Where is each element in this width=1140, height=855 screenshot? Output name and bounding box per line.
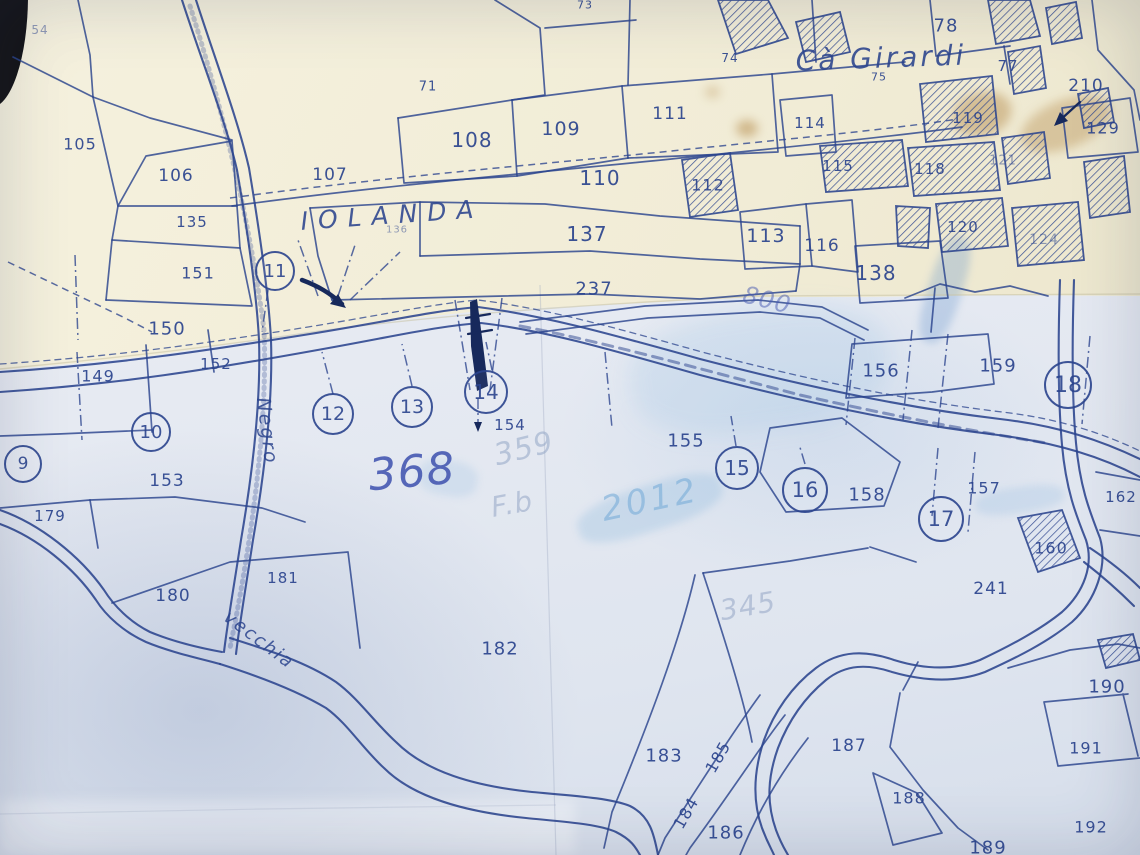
parcel-number: 129: [1086, 119, 1120, 138]
parcel-number: 120: [947, 218, 979, 236]
parcel-number: 192: [1074, 818, 1108, 837]
parcel-number: 78: [934, 16, 959, 37]
handwritten-note: 368: [366, 443, 457, 501]
parcel-number: 124: [1029, 232, 1059, 248]
parcel-number: 74: [721, 51, 738, 65]
parcel-number: 153: [149, 471, 184, 491]
parcel-number: 118: [914, 160, 946, 178]
parcel-number: 149: [81, 367, 115, 386]
survey-point-11: 11: [255, 251, 295, 291]
parcel-number: 77: [997, 57, 1018, 75]
parcel-number: 162: [1105, 488, 1137, 506]
parcel-number: 188: [892, 789, 926, 808]
parcel-number: 190: [1088, 677, 1125, 698]
survey-point-18: 18: [1044, 361, 1092, 409]
parcel-number: 138: [855, 261, 896, 285]
parcel-number: 105: [63, 135, 97, 154]
parcel-number: 137: [566, 222, 607, 246]
parcel-number: 107: [312, 165, 347, 185]
parcel-number: 237: [575, 279, 612, 300]
parcel-number: 180: [155, 586, 190, 606]
place-name: Cà Girardi: [795, 39, 967, 78]
parcel-number: 241: [973, 579, 1008, 599]
parcel-number: 116: [804, 236, 839, 256]
parcel-number: 151: [181, 264, 215, 283]
parcel-number: 155: [667, 431, 704, 452]
survey-point-10: 10: [131, 412, 171, 452]
survey-point-12: 12: [312, 393, 354, 435]
parcel-number: 157: [967, 479, 1001, 498]
parcel-number: 106: [158, 166, 193, 186]
parcel-number: 186: [707, 823, 744, 844]
parcel-number: 110: [579, 166, 620, 190]
parcel-number: 150: [148, 319, 185, 340]
parcel-number: 152: [200, 355, 232, 373]
parcel-number: 210: [1068, 76, 1103, 96]
parcel-number: 181: [267, 569, 299, 587]
parcel-number: 156: [862, 361, 899, 382]
survey-point-17: 17: [918, 496, 964, 542]
parcel-number: 112: [691, 176, 725, 195]
parcel-number: 121: [989, 154, 1017, 169]
survey-point-14: 14: [464, 370, 508, 414]
parcel-number: 119: [952, 109, 984, 127]
parcel-number: 191: [1069, 739, 1103, 758]
parcel-number: 158: [848, 485, 885, 506]
parcel-number: 114: [794, 114, 826, 132]
parcel-number: 187: [831, 736, 866, 756]
parcel-number: 183: [645, 746, 682, 767]
parcel-number: 111: [652, 104, 687, 124]
parcel-number: 189: [969, 838, 1006, 855]
parcel-number: 109: [541, 118, 580, 140]
parcel-number: 115: [822, 157, 854, 175]
parcel-number: 54: [31, 23, 48, 37]
survey-point-15: 15: [715, 446, 759, 490]
parcel-number: 73: [577, 0, 593, 12]
parcel-number: 113: [746, 225, 785, 247]
paper-folds: [0, 285, 1140, 855]
map-photo: 5410510613515110771108109110111137237112…: [0, 0, 1140, 855]
parcel-number: 159: [979, 356, 1016, 377]
parcel-number: 179: [34, 507, 66, 525]
parcel-number: 108: [451, 128, 492, 152]
parcel-number: 182: [481, 639, 518, 660]
parcel-number: 160: [1034, 539, 1068, 558]
parcel-number: 71: [419, 80, 438, 95]
parcel-number: 135: [176, 213, 208, 231]
survey-point-9: 9: [4, 445, 42, 483]
survey-point-16: 16: [782, 467, 828, 513]
survey-point-13: 13: [391, 386, 433, 428]
